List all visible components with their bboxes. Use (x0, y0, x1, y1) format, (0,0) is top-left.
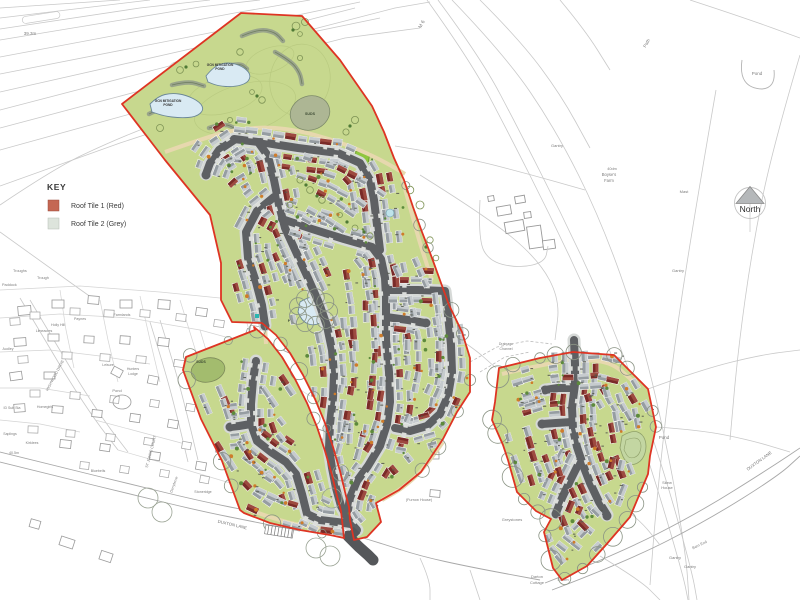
svg-text:Greystones: Greystones (502, 517, 522, 522)
svg-text:Gantry: Gantry (672, 268, 684, 273)
svg-text:Farm: Farm (604, 178, 614, 183)
svg-text:Mast: Mast (680, 189, 690, 194)
svg-text:(Furrow House): (Furrow House) (406, 498, 433, 502)
svg-text:KEY: KEY (47, 182, 66, 192)
svg-text:Gantry: Gantry (669, 555, 681, 560)
svg-text:POND: POND (163, 103, 173, 107)
svg-text:Stoneridge: Stoneridge (194, 490, 211, 494)
svg-text:Pond: Pond (659, 435, 670, 440)
svg-text:40.5m: 40.5m (9, 451, 19, 455)
svg-text:Homegirls: Homegirls (37, 405, 53, 409)
svg-text:Hunters: Hunters (127, 367, 140, 371)
svg-text:Troughs: Troughs (13, 269, 27, 273)
svg-text:40dm: 40dm (607, 167, 617, 171)
svg-text:Gantry: Gantry (684, 564, 696, 569)
svg-text:SUDS: SUDS (196, 360, 206, 364)
svg-text:Pond: Pond (752, 71, 763, 76)
svg-text:ID Sub Sta: ID Sub Sta (4, 406, 21, 410)
svg-text:Pond: Pond (112, 388, 121, 393)
svg-text:Saplings: Saplings (3, 432, 17, 436)
svg-text:Farmlands: Farmlands (114, 313, 131, 317)
svg-text:39.3m: 39.3m (24, 31, 37, 36)
svg-text:Limeacres: Limeacres (36, 329, 53, 333)
svg-text:Paddock: Paddock (2, 283, 17, 287)
svg-text:House: House (661, 485, 673, 490)
svg-text:SUDS: SUDS (305, 112, 316, 116)
svg-text:Channel: Channel (499, 347, 512, 351)
svg-text:Audley: Audley (3, 347, 14, 351)
svg-text:Leisure: Leisure (102, 363, 114, 367)
svg-text:North: North (740, 204, 761, 214)
svg-text:Paynes: Paynes (74, 317, 86, 321)
svg-text:Roof Tile 2 (Grey): Roof Tile 2 (Grey) (71, 221, 126, 228)
svg-text:Gantry: Gantry (551, 143, 563, 148)
svg-text:Bluebells: Bluebells (91, 469, 106, 473)
svg-text:Lodge: Lodge (128, 372, 138, 376)
svg-text:POND: POND (215, 67, 225, 71)
svg-text:Trough: Trough (37, 276, 49, 280)
svg-text:Darton: Darton (531, 574, 543, 579)
svg-text:Cottage: Cottage (530, 580, 545, 585)
svg-text:Boyse's: Boyse's (602, 172, 617, 177)
svg-text:Holly Hill: Holly Hill (51, 323, 65, 327)
svg-text:Roof Tile 1 (Red): Roof Tile 1 (Red) (71, 203, 124, 210)
svg-text:Kirklees: Kirklees (26, 441, 39, 445)
